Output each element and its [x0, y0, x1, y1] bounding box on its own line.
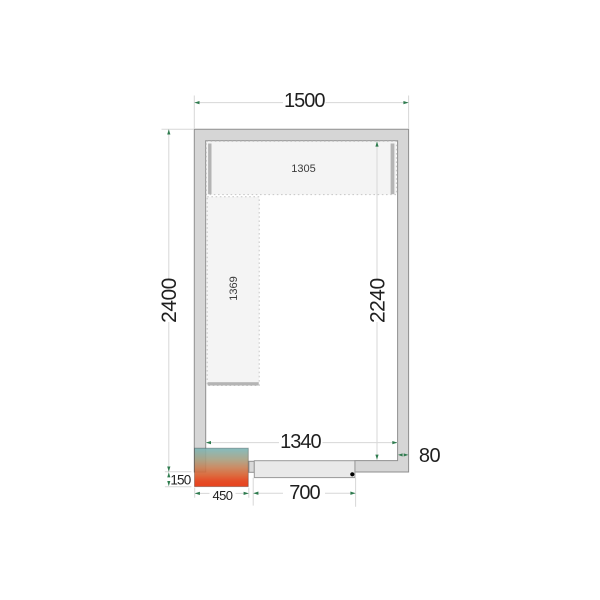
svg-text:80: 80 — [419, 445, 441, 467]
svg-text:2240: 2240 — [366, 278, 389, 323]
svg-text:1369: 1369 — [228, 276, 240, 300]
svg-text:150: 150 — [170, 473, 190, 488]
svg-text:700: 700 — [289, 482, 320, 504]
svg-text:1500: 1500 — [284, 90, 325, 112]
svg-text:2400: 2400 — [158, 278, 181, 323]
svg-text:1305: 1305 — [291, 163, 315, 175]
svg-text:1340: 1340 — [280, 431, 321, 453]
svg-text:450: 450 — [212, 488, 232, 503]
